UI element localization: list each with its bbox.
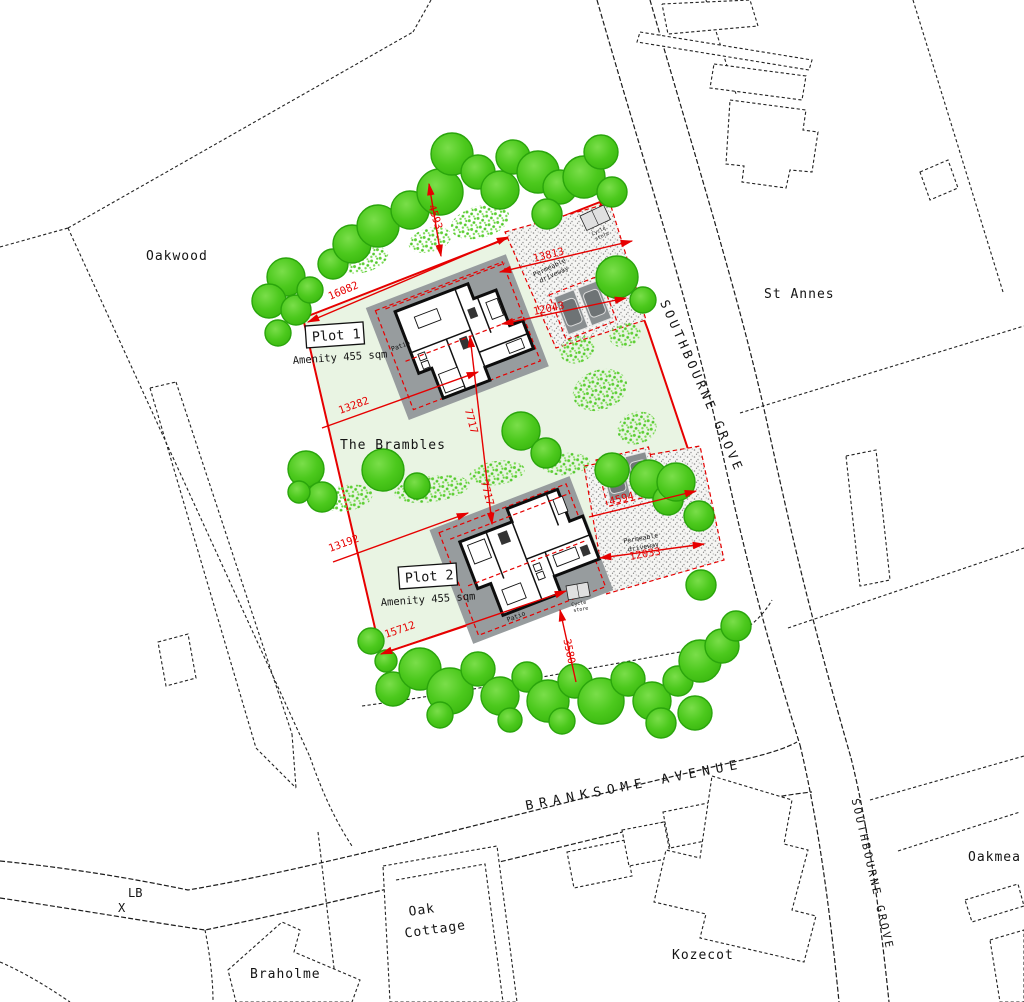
plot2-store-label-2: store xyxy=(573,606,589,615)
dim-3580: 3580 xyxy=(560,638,577,665)
plot1-title: Plot 1 xyxy=(311,326,361,345)
site-name-label: The Brambles xyxy=(340,438,446,453)
property-label-st-annes: St Annes xyxy=(764,287,835,302)
plot2-title-box: Plot 2 xyxy=(398,563,457,589)
dim-13192: 13192 xyxy=(327,533,361,555)
plot1-title-box: Plot 1 xyxy=(305,322,364,348)
property-label-oakwood: Oakwood xyxy=(146,249,208,264)
site-plan-drawing: Patio Patio xyxy=(0,0,1024,1002)
site-plan-canvas: Patio Patio xyxy=(0,0,1024,1002)
plot2-title: Plot 2 xyxy=(404,567,454,586)
road-label-southbourne-grove-lower: SOUTHBOURNE GROVE xyxy=(849,797,897,951)
property-label-braholme: Braholme xyxy=(250,967,321,982)
property-label-kozecot: Kozecot xyxy=(672,948,734,963)
x-marker-label: X xyxy=(118,901,126,915)
property-label-oakmea: Oakmea xyxy=(968,850,1021,865)
lb-marker-label: LB xyxy=(128,886,142,900)
